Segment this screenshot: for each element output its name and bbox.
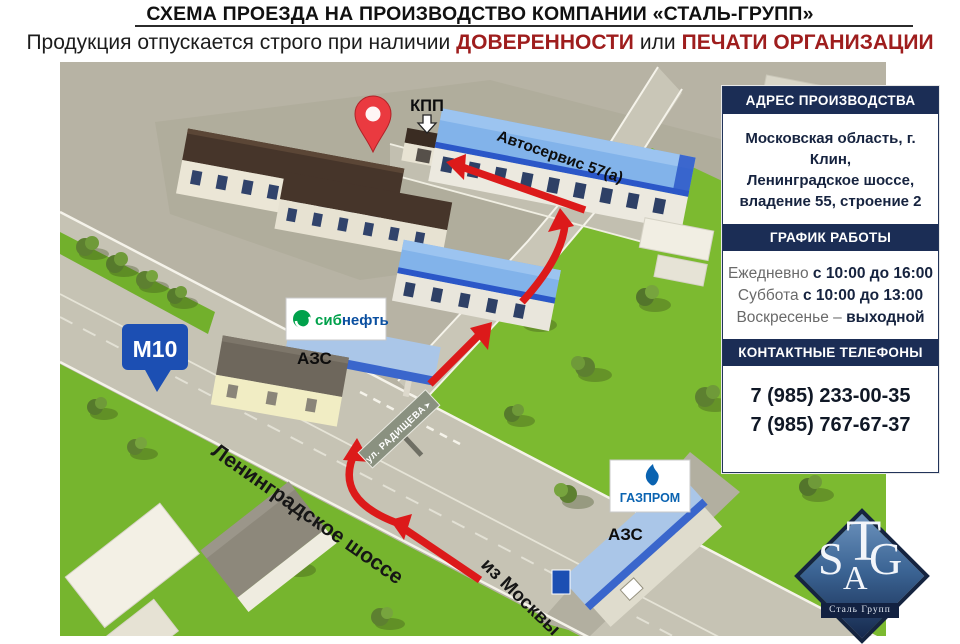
subtitle-prefix: Продукция отпускается строго при наличии bbox=[26, 31, 450, 55]
title-divider bbox=[135, 25, 913, 27]
schedule-row: Суббота с 10:00 до 13:00 bbox=[727, 285, 934, 307]
address-line: владение 55, строение 2 bbox=[729, 191, 932, 212]
gazprom-sign: ГАЗПРОМ bbox=[610, 460, 690, 512]
m10-badge-label: М10 bbox=[133, 336, 178, 362]
logo-letter-s: S bbox=[818, 536, 844, 582]
schedule-day: Ежедневно bbox=[728, 265, 809, 282]
sibneft-sign: сибнефть bbox=[286, 298, 389, 340]
phone-number: 7 (985) 233-00-35 bbox=[727, 382, 934, 411]
logo-monogram: T S G A bbox=[792, 506, 928, 642]
phones-block: 7 (985) 233-00-35 7 (985) 767-67-37 bbox=[727, 382, 934, 440]
subtitle: Продукция отпускается строго при наличии… bbox=[0, 31, 960, 55]
scheme-poster: СХЕМА ПРОЕЗДА НА ПРОИЗВОДСТВО КОМПАНИИ «… bbox=[0, 0, 960, 642]
gazprom-azs-label: АЗС bbox=[608, 525, 643, 544]
sibneft-azs-label: АЗС bbox=[297, 349, 332, 368]
company-logo: T S G A Сталь Групп bbox=[792, 506, 928, 642]
phones-heading: КОНТАКТНЫЕ ТЕЛЕФОНЫ bbox=[723, 339, 938, 366]
schedule-hours: с 10:00 до 13:00 bbox=[803, 287, 923, 304]
address-line: Ленинградское шоссе, bbox=[729, 170, 932, 191]
sibneft-brand-blue: нефть bbox=[342, 312, 389, 329]
schedule-row: Воскресенье – выходной bbox=[727, 307, 934, 329]
schedule-heading: ГРАФИК РАБОТЫ bbox=[723, 224, 938, 251]
subtitle-highlight-proxy: ДОВЕРЕННОСТИ bbox=[456, 31, 634, 55]
info-sidebar: АДРЕС ПРОИЗВОДСТВА Московская область, г… bbox=[722, 86, 939, 473]
page-title: СХЕМА ПРОЕЗДА НА ПРОИЗВОДСТВО КОМПАНИИ «… bbox=[0, 3, 960, 26]
schedule-hours: выходной bbox=[846, 309, 924, 326]
logo-caption: Сталь Групп bbox=[821, 603, 899, 618]
schedule-row: Ежедневно с 10:00 до 16:00 bbox=[727, 263, 934, 285]
phone-number: 7 (985) 767-67-37 bbox=[727, 411, 934, 440]
gazprom-brand-label: ГАЗПРОМ bbox=[620, 491, 680, 505]
logo-letter-a: A bbox=[843, 562, 868, 596]
gazprom-pylon-sign bbox=[552, 570, 570, 594]
subtitle-highlight-stamp: ПЕЧАТИ ОРГАНИЗАЦИИ bbox=[682, 31, 934, 55]
logo-letter-g: G bbox=[869, 536, 902, 582]
address-line: Московская область, г. Клин, bbox=[729, 128, 932, 170]
sibneft-brand-green: сиб bbox=[315, 312, 342, 329]
schedule-day: Воскресенье – bbox=[736, 309, 841, 326]
schedule-hours: с 10:00 до 16:00 bbox=[813, 265, 933, 282]
svg-text:сибнефть: сибнефть bbox=[315, 312, 389, 329]
subtitle-conjunction: или bbox=[640, 31, 676, 55]
kpp-label: КПП bbox=[410, 97, 444, 115]
address-heading: АДРЕС ПРОИЗВОДСТВА bbox=[723, 87, 938, 114]
schedule-block: Ежедневно с 10:00 до 16:00 Суббота с 10:… bbox=[727, 263, 934, 329]
address-block: Московская область, г. Клин, Ленинградск… bbox=[729, 128, 932, 212]
schedule-day: Суббота bbox=[738, 287, 799, 304]
